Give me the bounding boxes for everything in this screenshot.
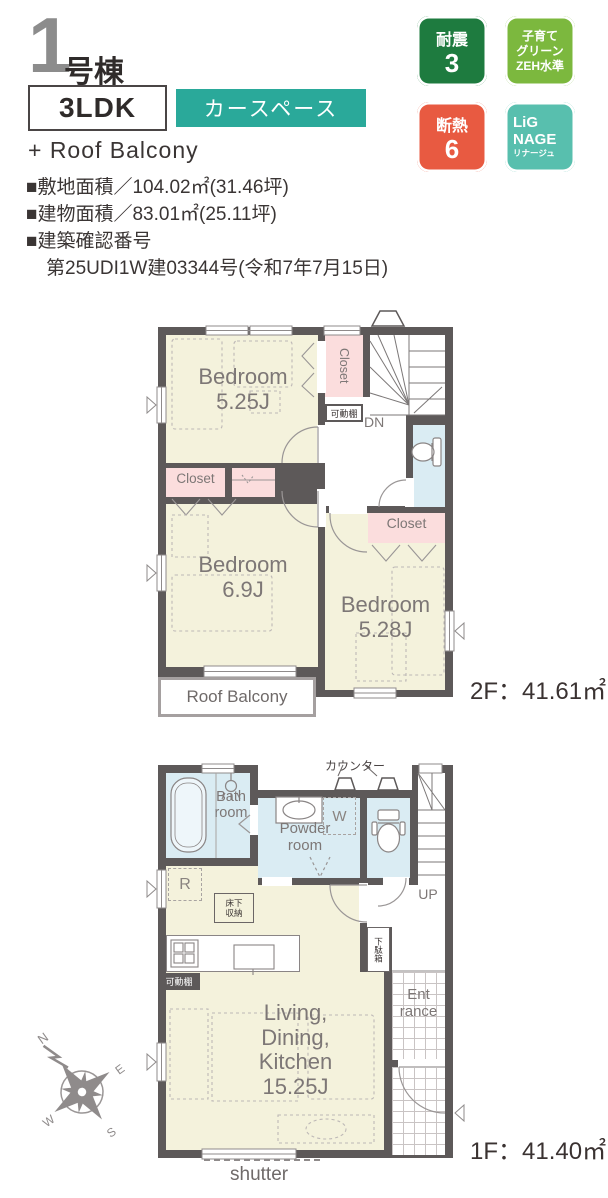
spec-site-area: ■敷地面積／104.02㎡(31.46坪): [26, 172, 289, 199]
floor2-adjustable-shelf-label: 可動棚: [325, 404, 363, 422]
floor1-bath-label: Bath room: [206, 789, 256, 821]
floor2-toilet-room: [413, 425, 445, 507]
floor2-bedroom3-label: Bedroom 5.28J: [328, 593, 443, 642]
compass-rose: N E S W: [14, 1026, 150, 1166]
floor2-bedroom2-label: Bedroom 6.9J: [168, 553, 318, 602]
floor1-hall-lower: [392, 927, 445, 972]
badge-kosodate: 子育て グリーン ZEH水準: [505, 16, 575, 86]
floor1-porch: [392, 1067, 445, 1155]
floor1-ldk-label: Living, Dining, Kitchen 15.25J: [213, 1001, 378, 1100]
badge-taishin-label: 耐震: [436, 26, 468, 50]
floor1-shoe-box: 下駄箱: [367, 927, 390, 972]
badge-lignage: LiG NAGE リナージュ: [505, 102, 575, 172]
shutter-line: [204, 1159, 320, 1161]
compass-e: E: [113, 1061, 128, 1077]
floor2-closet3-label: Closet: [368, 516, 445, 532]
floor1-entrance-label: Ent rance: [392, 987, 445, 1021]
compass-s: S: [104, 1124, 119, 1140]
floor1-washer-space: W: [323, 797, 356, 835]
badge-kosodate-lines: 子育て グリーン ZEH水準: [516, 29, 564, 74]
extra-feature: + Roof Balcony: [28, 137, 199, 164]
compass-w: W: [40, 1112, 58, 1130]
floor1-kitchen-counter: [166, 935, 300, 972]
floor2-bedroom1-label: Bedroom 5.25J: [168, 365, 318, 414]
spec-building-area: ■建物面積／83.01㎡(25.11坪): [26, 199, 277, 226]
flyer-page: 1 号棟 3LDK カースペース + Roof Balcony ■敷地面積／10…: [0, 0, 608, 1198]
layout-badge: 3LDK: [28, 85, 167, 131]
badge-taishin-value: 3: [445, 50, 459, 76]
floor1-up-label: UP: [408, 887, 448, 903]
floor1-floor-storage: 床下 収納: [214, 893, 254, 923]
floor1-stairs: [418, 773, 445, 885]
floor2-closet-mid2-room: [232, 468, 275, 497]
floor2-plan: Bedroom 5.25J Closet 可動棚 DN Closet Bedro…: [158, 327, 453, 697]
floor2-closet-mid-label: Closet: [166, 471, 225, 486]
shutter-label: shutter: [230, 1164, 288, 1186]
compass-n: N: [35, 1029, 51, 1047]
badge-dannetsu-label: 断熱: [436, 112, 468, 136]
floor1-plan: Bath room Powder room W UP R 床下 収納 可動棚 下…: [158, 765, 453, 1158]
floor2-area-label: 2F：41.61㎡: [470, 671, 606, 706]
badge-lignage-line3: リナージュ: [513, 148, 555, 158]
badge-lignage-line1: LiG: [513, 115, 538, 132]
badge-lignage-line2: NAGE: [513, 132, 556, 149]
spec-confirmation-number: 第25UDI1W建03344号(令和7年7月15日): [46, 253, 388, 280]
floor1-counter-label: カウンター: [325, 757, 385, 774]
badge-dannetsu-value: 6: [445, 136, 459, 162]
floor2-closet-top-label: Closet: [325, 337, 363, 395]
floor1-toilet-room: [367, 798, 410, 878]
floor1-adjustable-shelf-label: 可動棚: [158, 973, 200, 990]
floor2-down-label: DN: [364, 415, 404, 431]
floor1-fridge-space: R: [168, 868, 202, 901]
spec-confirmation-title: ■建築確認番号: [26, 226, 151, 253]
floor2-roof-balcony: Roof Balcony: [158, 677, 316, 717]
badge-taishin: 耐震 3: [417, 16, 487, 86]
floor1-area-label: 1F：41.40㎡: [470, 1131, 606, 1166]
feature-badge: カースペース: [176, 89, 366, 127]
badge-dannetsu: 断熱 6: [417, 102, 487, 172]
